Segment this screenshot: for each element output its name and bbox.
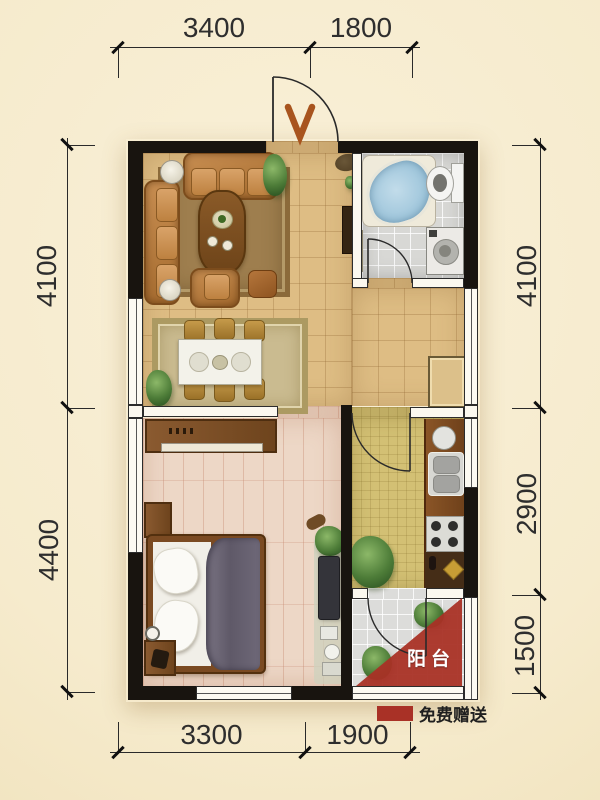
dim-label-right-2: 2900 — [511, 424, 543, 584]
sofa-cushion — [156, 226, 178, 260]
wall-bathroom-bottom-a — [352, 278, 368, 288]
dim-line-top — [110, 47, 420, 48]
wall-bathroom-bottom-b — [412, 278, 464, 288]
fruit-bowl — [212, 210, 233, 229]
tv-panel — [318, 556, 340, 620]
window-balcony-bottom — [352, 686, 464, 700]
extension-line — [512, 408, 540, 409]
dim-label-bottom-1: 3300 — [118, 719, 305, 751]
wall-balcony-b — [426, 588, 464, 599]
balcony-plant — [362, 646, 392, 680]
dim-line-bottom — [110, 752, 420, 753]
kitchen-sink — [428, 452, 464, 496]
extension-line — [410, 722, 411, 752]
washing-machine — [426, 227, 464, 275]
floor-plan: 3400 1800 3300 1900 4100 4400 4100 2900 … — [0, 0, 600, 800]
legend-label: 免费赠送 — [419, 701, 529, 726]
wall-kitchen-top — [410, 407, 464, 418]
counter-dark — [425, 552, 464, 588]
sofa-cushion — [204, 274, 230, 300]
shelf-item — [320, 626, 338, 640]
legend-swatch — [377, 706, 413, 721]
nightstand — [144, 640, 176, 676]
dim-line-left — [67, 138, 68, 700]
shelf-item — [324, 644, 340, 660]
extension-line — [118, 48, 119, 78]
bottle — [429, 556, 436, 570]
dim-label-top-2: 1800 — [310, 12, 412, 44]
burner — [448, 521, 458, 531]
wardrobe — [145, 419, 277, 453]
burner — [431, 537, 441, 547]
wall-bottom-left — [128, 686, 196, 700]
extension-line — [412, 48, 413, 78]
wall-lamp — [145, 626, 160, 641]
dining-table — [178, 339, 262, 385]
wall-top-left — [128, 141, 266, 153]
coffee-table — [198, 190, 246, 274]
dim-label-right-1: 4100 — [511, 196, 543, 356]
kitchen-threshold — [352, 407, 410, 418]
wardrobe-hangers — [169, 428, 197, 434]
wall-right-mid — [464, 488, 478, 597]
entry-threshold — [266, 141, 338, 153]
sink-bowl — [433, 475, 460, 493]
window-balcony-right — [464, 597, 478, 700]
potted-plant — [146, 370, 172, 406]
dim-label-left-1: 4100 — [31, 196, 63, 356]
table-centerpiece — [212, 355, 228, 370]
washer-drum-inner — [439, 245, 451, 257]
armchair — [190, 268, 240, 308]
table-plate — [189, 352, 209, 372]
toilet — [426, 166, 454, 201]
decor-tile — [443, 559, 464, 580]
balcony-plant — [414, 602, 444, 628]
wall-top-right — [338, 141, 478, 153]
window-living-left — [128, 298, 143, 405]
window-bedroom-bottom — [196, 686, 292, 700]
burner — [431, 521, 441, 531]
wall-junction-left — [128, 405, 143, 418]
wall-living-bedroom — [143, 406, 278, 417]
teacup — [207, 236, 218, 247]
wall-left-upper — [128, 141, 143, 298]
wall-balcony-a — [352, 588, 368, 599]
wall-left-lower — [128, 553, 143, 700]
kitchen-plant — [350, 536, 394, 588]
bedside-chest — [144, 502, 172, 538]
table-plate — [231, 352, 251, 372]
toilet-bowl — [433, 174, 447, 192]
wall-bedroom-kitchen — [341, 405, 352, 700]
extension-line — [310, 48, 311, 78]
dim-label-left-2: 4400 — [33, 470, 65, 630]
window-kitchen-right — [464, 418, 478, 488]
fruit — [218, 215, 226, 223]
balcony-threshold — [368, 588, 426, 599]
burner — [448, 537, 458, 547]
hall-cabinet — [428, 356, 466, 408]
duvet — [206, 538, 260, 670]
potted-plant — [263, 154, 287, 196]
teacup — [222, 240, 233, 251]
handbag — [150, 649, 169, 670]
entry-direction-marker — [288, 107, 312, 137]
wall-junction-right — [464, 405, 478, 418]
bathroom-threshold — [368, 278, 412, 288]
sink-bowl — [433, 456, 460, 474]
washer-control — [429, 230, 437, 237]
extension-line — [512, 145, 540, 146]
dim-label-bottom-2: 1900 — [305, 719, 410, 751]
dining-chair — [214, 318, 235, 340]
wardrobe-rail — [161, 443, 263, 452]
window-hall-right — [464, 288, 478, 405]
wall-right-upper — [464, 141, 478, 288]
ottoman — [248, 270, 277, 298]
kitchen-basin — [432, 426, 456, 450]
stove — [426, 516, 464, 552]
dim-label-top-1: 3400 — [118, 12, 310, 44]
shelf-item — [322, 662, 342, 676]
balcony-label: 阳台 — [396, 644, 466, 668]
side-table — [159, 279, 181, 301]
window-bedroom-left — [128, 418, 143, 553]
wall-bathroom-left — [352, 153, 362, 288]
sofa-cushion — [156, 188, 178, 222]
side-table — [160, 160, 184, 184]
entry-door-swing-arc — [273, 77, 338, 142]
